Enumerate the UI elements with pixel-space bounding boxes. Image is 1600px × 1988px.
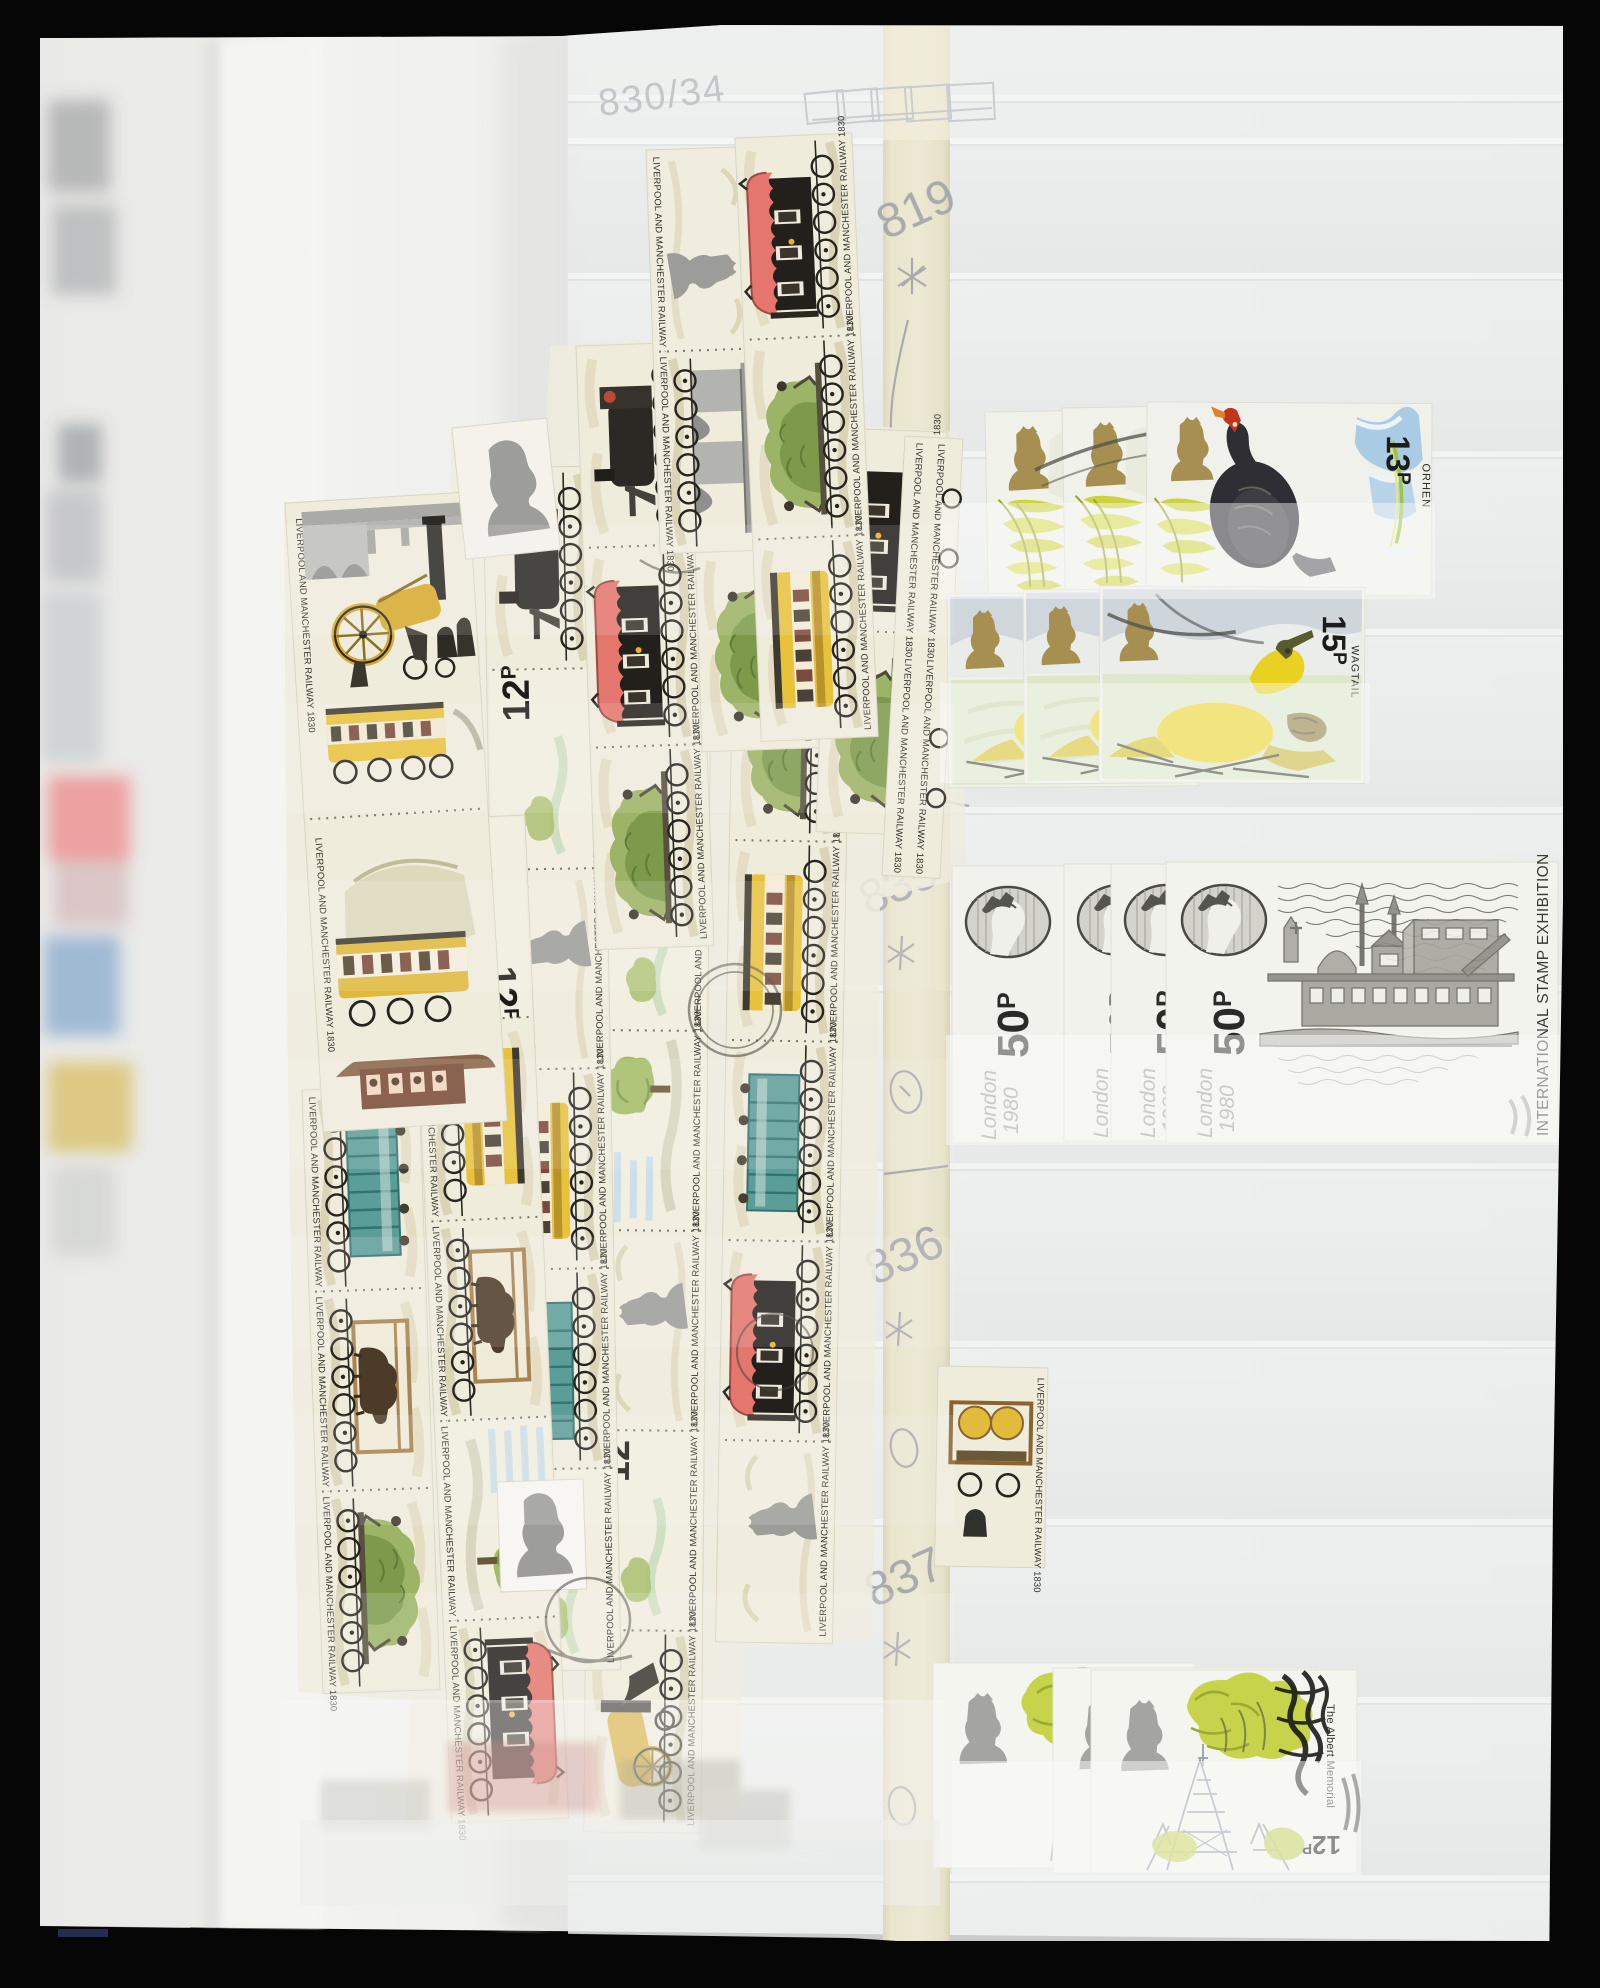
svg-text:ORHEN: ORHEN — [1419, 463, 1431, 508]
